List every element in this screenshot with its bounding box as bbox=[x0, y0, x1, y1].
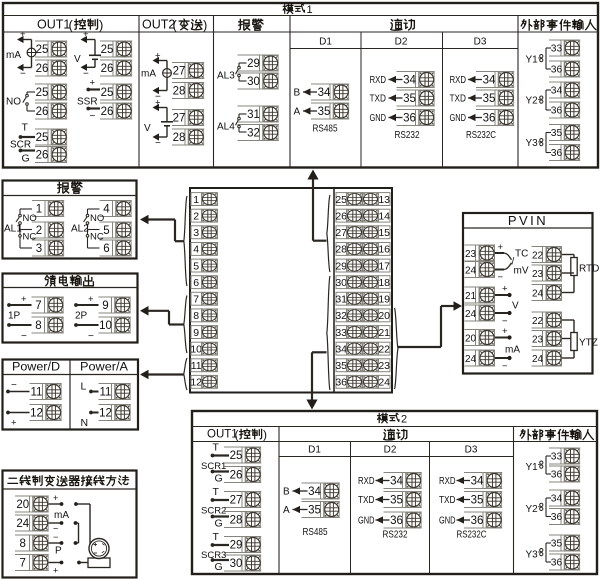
svg-text:Power/D: Power/D bbox=[12, 362, 60, 374]
svg-text:+: + bbox=[88, 294, 94, 305]
svg-text:(: ( bbox=[173, 18, 178, 33]
svg-text:D1: D1 bbox=[319, 37, 332, 48]
svg-text:2: 2 bbox=[36, 225, 42, 237]
svg-text:RS485: RS485 bbox=[303, 526, 328, 538]
svg-text:23: 23 bbox=[465, 249, 477, 260]
svg-text:2: 2 bbox=[401, 414, 407, 426]
svg-text:34: 34 bbox=[551, 86, 563, 97]
svg-text:−: − bbox=[20, 69, 26, 80]
svg-text:D1: D1 bbox=[308, 445, 321, 456]
svg-text:8: 8 bbox=[35, 320, 41, 332]
svg-text:18: 18 bbox=[378, 277, 390, 289]
svg-text:24: 24 bbox=[532, 354, 544, 365]
svg-text:D2: D2 bbox=[384, 445, 397, 456]
svg-text:−: − bbox=[83, 69, 89, 80]
svg-text:36: 36 bbox=[551, 106, 563, 117]
svg-text:25: 25 bbox=[36, 132, 49, 144]
svg-text:12: 12 bbox=[30, 408, 43, 420]
svg-text:12: 12 bbox=[99, 408, 112, 420]
svg-text:+: + bbox=[53, 566, 58, 576]
svg-text:G: G bbox=[215, 518, 223, 530]
svg-text:AL3: AL3 bbox=[217, 71, 235, 82]
svg-text:B: B bbox=[294, 88, 301, 99]
svg-text:L: L bbox=[81, 381, 87, 393]
svg-text:RS232C: RS232C bbox=[457, 529, 487, 541]
svg-text:33: 33 bbox=[551, 44, 563, 55]
svg-text:mV: mV bbox=[514, 266, 529, 277]
svg-text:N: N bbox=[81, 417, 89, 429]
svg-text:−: − bbox=[88, 331, 94, 342]
svg-text:20: 20 bbox=[378, 310, 390, 322]
svg-text:34: 34 bbox=[403, 75, 416, 87]
svg-text:GND: GND bbox=[358, 516, 375, 527]
svg-text:20: 20 bbox=[16, 499, 29, 511]
svg-text:35: 35 bbox=[403, 93, 416, 105]
svg-text:T: T bbox=[213, 486, 220, 498]
svg-text:AL4: AL4 bbox=[217, 122, 235, 133]
svg-text:D3: D3 bbox=[465, 445, 478, 456]
svg-text:TXD: TXD bbox=[450, 94, 467, 105]
svg-text:TC: TC bbox=[515, 249, 528, 260]
svg-text:D3: D3 bbox=[474, 37, 487, 48]
svg-text:26: 26 bbox=[335, 210, 347, 222]
svg-text:33: 33 bbox=[551, 452, 563, 463]
svg-text:11: 11 bbox=[31, 387, 43, 399]
svg-text:23: 23 bbox=[532, 335, 544, 346]
svg-text:36: 36 bbox=[390, 515, 403, 527]
svg-text:25: 25 bbox=[36, 87, 49, 99]
svg-text:−: − bbox=[21, 331, 27, 342]
svg-text:G: G bbox=[215, 561, 223, 573]
svg-text:20: 20 bbox=[465, 334, 477, 345]
svg-text:28: 28 bbox=[173, 132, 186, 144]
svg-text:3: 3 bbox=[193, 227, 199, 239]
svg-text:5: 5 bbox=[193, 260, 199, 272]
svg-text:Y2: Y2 bbox=[526, 504, 539, 515]
svg-text:36: 36 bbox=[483, 113, 496, 125]
svg-text:RXD: RXD bbox=[370, 75, 387, 86]
svg-text:6: 6 bbox=[193, 277, 199, 289]
svg-text:26: 26 bbox=[36, 63, 49, 75]
svg-text:GND: GND bbox=[450, 113, 467, 124]
svg-text:21: 21 bbox=[465, 291, 477, 302]
svg-text:mA: mA bbox=[6, 50, 21, 61]
svg-text:Y1: Y1 bbox=[526, 55, 539, 66]
svg-text:25: 25 bbox=[101, 87, 114, 99]
svg-text:26: 26 bbox=[101, 106, 114, 118]
svg-text:33: 33 bbox=[335, 327, 347, 339]
svg-text:3: 3 bbox=[36, 243, 42, 255]
svg-text:35: 35 bbox=[471, 495, 484, 507]
svg-text:28: 28 bbox=[230, 515, 243, 527]
svg-text:+: + bbox=[498, 242, 504, 253]
svg-text:): ) bbox=[203, 18, 207, 33]
svg-text:8: 8 bbox=[193, 310, 199, 322]
svg-text:4: 4 bbox=[103, 204, 110, 216]
svg-text:25: 25 bbox=[335, 194, 347, 206]
svg-text:30: 30 bbox=[230, 558, 243, 570]
svg-text:10: 10 bbox=[190, 343, 202, 355]
svg-text:13: 13 bbox=[378, 194, 390, 206]
svg-text:27: 27 bbox=[173, 66, 186, 78]
svg-text:G: G bbox=[22, 153, 30, 165]
svg-text:23: 23 bbox=[532, 269, 544, 280]
svg-text:G: G bbox=[215, 473, 223, 485]
svg-text:1: 1 bbox=[36, 204, 42, 216]
svg-text:23: 23 bbox=[378, 360, 390, 372]
svg-text:−: − bbox=[502, 361, 508, 372]
svg-text:34: 34 bbox=[551, 494, 563, 505]
svg-text:12: 12 bbox=[190, 377, 202, 389]
svg-text:B: B bbox=[283, 487, 290, 498]
svg-text:NO: NO bbox=[6, 97, 21, 108]
svg-text:24: 24 bbox=[16, 518, 29, 530]
svg-text:AL2: AL2 bbox=[71, 224, 89, 235]
svg-text:25: 25 bbox=[101, 44, 114, 56]
svg-text:35: 35 bbox=[551, 128, 563, 139]
svg-text:11: 11 bbox=[100, 387, 112, 399]
svg-text:19: 19 bbox=[378, 294, 390, 306]
svg-text:7: 7 bbox=[193, 294, 199, 306]
svg-text:11: 11 bbox=[191, 360, 202, 372]
svg-text:25: 25 bbox=[230, 450, 243, 462]
svg-text:RXD: RXD bbox=[358, 476, 375, 487]
svg-text:36: 36 bbox=[551, 65, 563, 76]
svg-text:7: 7 bbox=[20, 558, 26, 570]
svg-text:35: 35 bbox=[551, 539, 563, 550]
svg-text:+: + bbox=[502, 284, 508, 295]
svg-text:24: 24 bbox=[378, 377, 390, 389]
svg-text:24: 24 bbox=[465, 309, 477, 320]
svg-text:PVIN: PVIN bbox=[508, 213, 548, 228]
svg-text:34: 34 bbox=[471, 476, 484, 488]
svg-text:25: 25 bbox=[36, 44, 49, 56]
svg-text:+: + bbox=[90, 78, 96, 89]
svg-text:22: 22 bbox=[378, 343, 390, 355]
svg-text:YTZ: YTZ bbox=[579, 338, 598, 349]
svg-text:2: 2 bbox=[193, 210, 199, 222]
svg-text:34: 34 bbox=[308, 486, 321, 498]
svg-text:GND: GND bbox=[370, 113, 387, 124]
svg-text:5: 5 bbox=[103, 225, 109, 237]
svg-text:21: 21 bbox=[378, 327, 390, 339]
svg-text:22: 22 bbox=[532, 251, 544, 262]
svg-text:T: T bbox=[213, 442, 220, 454]
svg-text:28: 28 bbox=[335, 244, 347, 256]
svg-text:NO: NO bbox=[90, 213, 104, 224]
svg-text:+: + bbox=[21, 294, 27, 305]
svg-text:): ) bbox=[99, 18, 103, 33]
svg-text:24: 24 bbox=[465, 354, 477, 365]
svg-text:RS232: RS232 bbox=[383, 529, 408, 541]
svg-text:mA: mA bbox=[505, 345, 520, 356]
svg-text:36: 36 bbox=[551, 148, 563, 159]
svg-text:RXD: RXD bbox=[439, 476, 456, 487]
svg-text:9: 9 bbox=[193, 327, 199, 339]
svg-text:NC: NC bbox=[23, 232, 37, 243]
svg-text:RTD: RTD bbox=[579, 264, 599, 275]
svg-text:2P: 2P bbox=[75, 311, 88, 322]
svg-text:−: − bbox=[155, 138, 161, 149]
svg-text:D2: D2 bbox=[395, 37, 408, 48]
svg-text:SCR2: SCR2 bbox=[201, 506, 226, 517]
svg-text:): ) bbox=[263, 428, 267, 442]
svg-text:29: 29 bbox=[335, 260, 347, 272]
svg-text:35: 35 bbox=[483, 93, 496, 105]
svg-text:Power/A: Power/A bbox=[80, 362, 128, 374]
svg-text:28: 28 bbox=[173, 86, 186, 98]
svg-text:17: 17 bbox=[378, 260, 390, 272]
svg-text:26: 26 bbox=[101, 63, 114, 75]
svg-text:36: 36 bbox=[551, 470, 563, 481]
svg-text:NC: NC bbox=[90, 232, 104, 243]
svg-text:7: 7 bbox=[35, 300, 41, 312]
svg-text:RS485: RS485 bbox=[313, 123, 338, 135]
svg-text:−: − bbox=[11, 380, 17, 391]
svg-text:10: 10 bbox=[99, 320, 112, 332]
svg-text:V: V bbox=[144, 123, 151, 134]
svg-text:GND: GND bbox=[439, 516, 456, 527]
svg-text:1: 1 bbox=[307, 4, 313, 16]
svg-text:34: 34 bbox=[483, 75, 496, 87]
svg-text:A: A bbox=[294, 107, 301, 118]
svg-text:mA: mA bbox=[54, 510, 69, 521]
svg-text:T: T bbox=[213, 531, 220, 543]
svg-text:9: 9 bbox=[102, 300, 108, 312]
svg-text:29: 29 bbox=[247, 58, 260, 70]
svg-text:36: 36 bbox=[551, 558, 563, 569]
svg-text:36: 36 bbox=[403, 113, 416, 125]
svg-text:34: 34 bbox=[335, 343, 347, 355]
svg-text:35: 35 bbox=[335, 360, 347, 372]
svg-text:−: − bbox=[498, 272, 504, 283]
svg-text:T: T bbox=[22, 122, 29, 134]
svg-text:35: 35 bbox=[318, 106, 331, 118]
svg-text:6: 6 bbox=[103, 243, 109, 255]
svg-text:Y2: Y2 bbox=[526, 96, 539, 107]
svg-text:36: 36 bbox=[471, 515, 484, 527]
svg-text:Y1: Y1 bbox=[526, 462, 539, 473]
svg-text:TXD: TXD bbox=[439, 495, 456, 506]
svg-text:34: 34 bbox=[390, 476, 403, 488]
svg-text:RS232: RS232 bbox=[395, 129, 420, 141]
svg-text:36: 36 bbox=[551, 512, 563, 523]
svg-text:+: + bbox=[11, 418, 17, 429]
svg-text:(: ( bbox=[235, 428, 239, 442]
svg-text:27: 27 bbox=[230, 495, 243, 507]
svg-text:(: ( bbox=[69, 18, 74, 33]
svg-text:mA: mA bbox=[141, 69, 156, 80]
svg-text:+: + bbox=[502, 326, 508, 337]
svg-text:NO: NO bbox=[23, 213, 37, 224]
svg-text:36: 36 bbox=[335, 377, 347, 389]
svg-text:Y3: Y3 bbox=[526, 138, 539, 149]
svg-text:26: 26 bbox=[36, 150, 49, 162]
svg-text:27: 27 bbox=[173, 113, 186, 125]
svg-text:22: 22 bbox=[532, 316, 544, 327]
svg-text:4: 4 bbox=[193, 244, 199, 256]
svg-text:24: 24 bbox=[465, 266, 477, 277]
svg-text:1P: 1P bbox=[8, 311, 21, 322]
svg-text:30: 30 bbox=[247, 76, 260, 88]
svg-text:16: 16 bbox=[378, 244, 390, 256]
svg-text:31: 31 bbox=[247, 109, 260, 121]
svg-text:26: 26 bbox=[230, 470, 243, 482]
svg-text:A: A bbox=[283, 505, 290, 516]
svg-text:1: 1 bbox=[193, 194, 199, 206]
svg-text:29: 29 bbox=[230, 540, 243, 552]
svg-text:TXD: TXD bbox=[370, 94, 387, 105]
svg-text:−: − bbox=[53, 532, 58, 542]
svg-text:V: V bbox=[512, 301, 519, 312]
svg-text:31: 31 bbox=[335, 294, 347, 306]
svg-text:30: 30 bbox=[335, 277, 347, 289]
svg-text:P: P bbox=[55, 546, 62, 557]
svg-text:−: − bbox=[90, 111, 96, 122]
svg-text:35: 35 bbox=[390, 495, 403, 507]
svg-text:34: 34 bbox=[318, 87, 331, 99]
svg-text:14: 14 bbox=[378, 210, 390, 222]
svg-text:35: 35 bbox=[308, 505, 321, 517]
svg-text:32: 32 bbox=[335, 310, 347, 322]
svg-text:TXD: TXD bbox=[358, 495, 375, 506]
svg-text:OUT1: OUT1 bbox=[207, 429, 238, 441]
svg-text:24: 24 bbox=[532, 289, 544, 300]
svg-text:26: 26 bbox=[36, 106, 49, 118]
svg-text:SSR: SSR bbox=[77, 97, 98, 108]
svg-text:AL1: AL1 bbox=[4, 224, 22, 235]
svg-text:V: V bbox=[74, 54, 81, 65]
svg-text:RXD: RXD bbox=[450, 75, 467, 86]
svg-text:OUT1: OUT1 bbox=[37, 18, 70, 32]
svg-text:8: 8 bbox=[20, 538, 26, 550]
svg-text:Y3: Y3 bbox=[526, 550, 539, 561]
svg-text:+: + bbox=[53, 493, 58, 503]
svg-text:15: 15 bbox=[378, 227, 390, 239]
svg-text:32: 32 bbox=[247, 128, 260, 140]
svg-text:27: 27 bbox=[335, 227, 347, 239]
svg-text:OUT2: OUT2 bbox=[142, 18, 175, 32]
svg-text:RS232C: RS232C bbox=[466, 129, 496, 141]
